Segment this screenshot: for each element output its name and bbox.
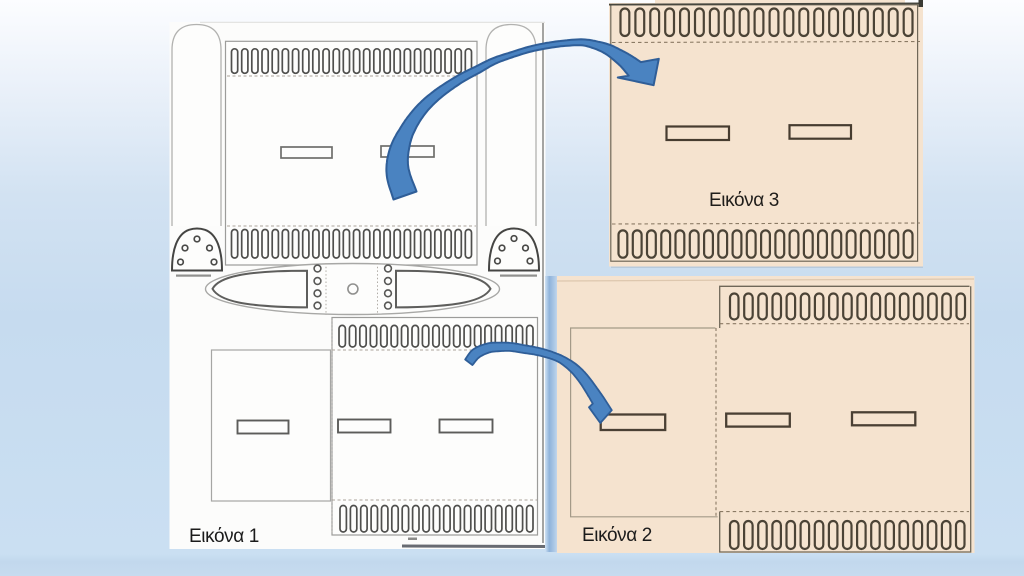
svg-text:Εικόνα 3: Εικόνα 3 — [709, 190, 779, 211]
svg-text:Εικόνα 2: Εικόνα 2 — [582, 525, 652, 546]
svg-text:Εικόνα 1: Εικόνα 1 — [189, 526, 259, 547]
